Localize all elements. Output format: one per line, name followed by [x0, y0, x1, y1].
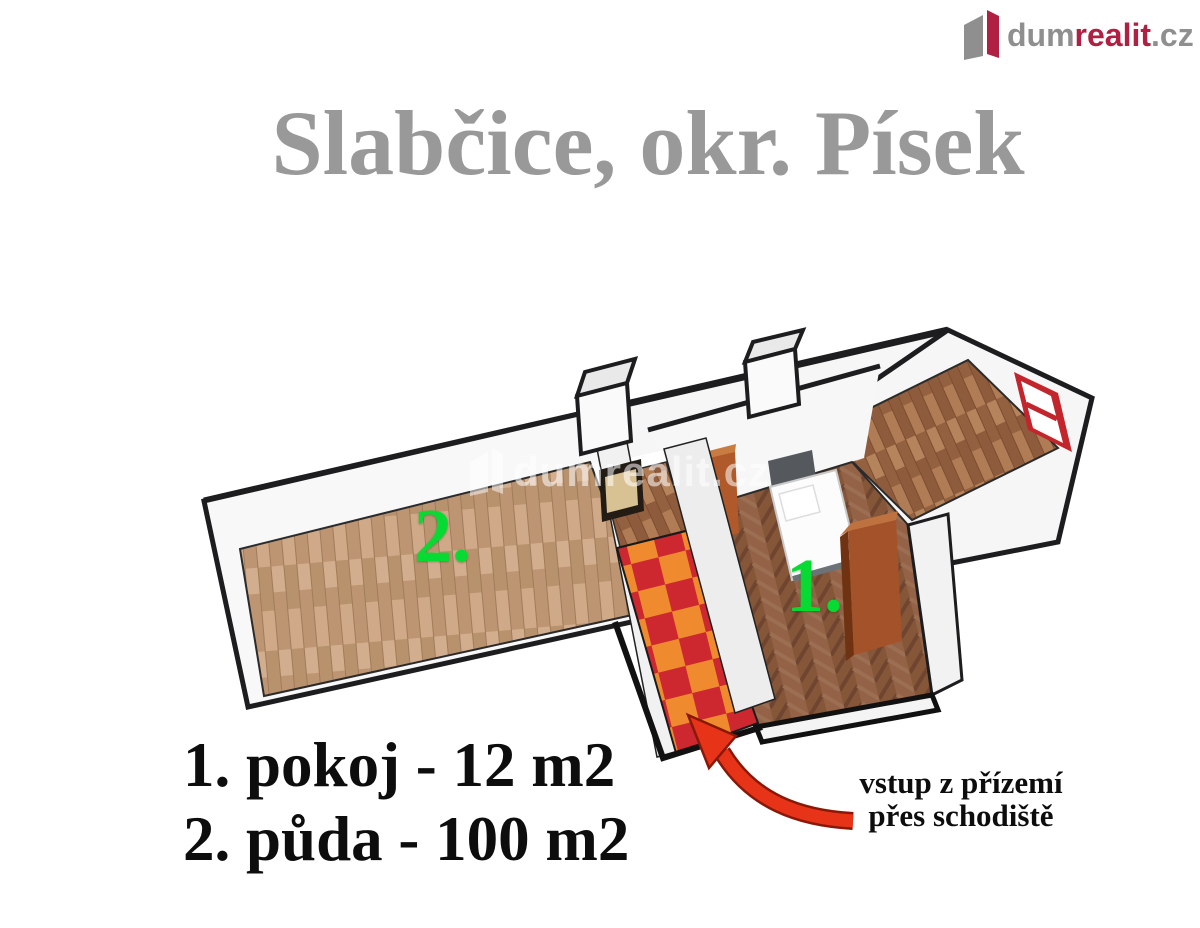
logo-text: dumrealit.cz [1007, 11, 1194, 59]
chimney-right [745, 330, 803, 417]
legend-item-1: 1. pokoj - 12 m2 [183, 728, 629, 802]
logo-text-dum: dum [1007, 17, 1075, 53]
dumrealit-logo: dumrealit.cz [962, 10, 1194, 60]
wardrobe-right [840, 511, 902, 661]
entrance-annotation-line2: přes schodiště [830, 799, 1092, 832]
room-label-1: 1. [786, 548, 843, 624]
logo-text-realit: realit [1075, 17, 1151, 53]
legend: 1. pokoj - 12 m2 2. půda - 100 m2 [183, 728, 629, 876]
room-label-2: 2. [414, 498, 471, 574]
logo-text-cz: .cz [1151, 17, 1194, 53]
dumrealit-logo-icon [962, 10, 1000, 60]
entrance-annotation: vstup z přízemí přes schodiště [830, 766, 1092, 832]
chimney-left [577, 359, 635, 454]
page-title: Slabčice, okr. Písek [48, 97, 1200, 189]
picture-frame [599, 459, 644, 522]
legend-item-2: 2. půda - 100 m2 [183, 802, 629, 876]
page: dumrealit.cz 2. 1. dumrealit.cz Slabčice… [0, 0, 1200, 928]
entrance-annotation-line1: vstup z přízemí [830, 766, 1092, 799]
